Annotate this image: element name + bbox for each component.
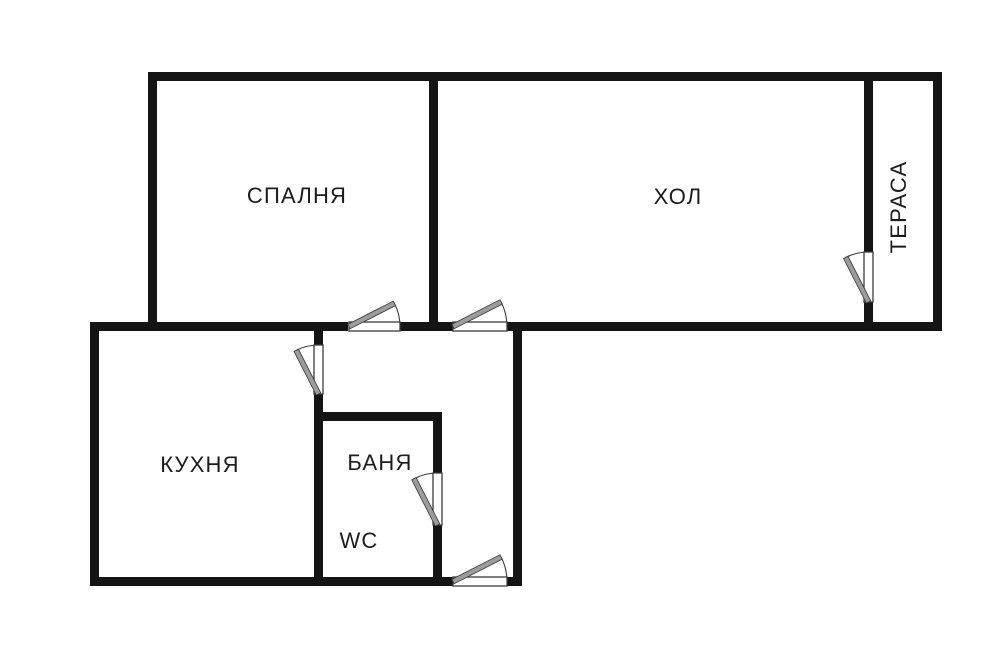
- kitchen-door: [294, 345, 323, 395]
- bottom-wall-left: [90, 577, 453, 586]
- terrace-divider-lower: [864, 302, 873, 322]
- kitchen-bath-wall-upper: [314, 331, 323, 345]
- bathroom-right-wall-upper: [433, 412, 442, 473]
- bedroom-door: [348, 301, 400, 331]
- hall-label: ХОЛ: [654, 184, 703, 209]
- bedroom-hall-divider: [429, 81, 438, 322]
- bathroom-top-wall: [314, 412, 442, 421]
- bedroom-label: СПАЛНЯ: [247, 183, 347, 208]
- kitchen-bath-wall-lower: [314, 394, 323, 586]
- bathroom-door: [412, 473, 442, 526]
- top-outer-wall: [150, 72, 942, 81]
- corridor-wall-left: [90, 322, 348, 331]
- entry-door: [452, 555, 507, 586]
- terrace-divider-upper: [864, 81, 873, 252]
- wc-label: WC: [339, 528, 378, 553]
- bathroom-label: БАНЯ: [347, 450, 412, 475]
- walls: [90, 72, 942, 586]
- terrace-door: [844, 252, 873, 303]
- corridor-wall-mid: [400, 322, 453, 331]
- corridor-wall-right: [507, 322, 942, 331]
- terrace-label: ТЕРАСА: [886, 161, 911, 254]
- entry-right-wall: [513, 331, 522, 586]
- bedroom-left-wall: [148, 72, 157, 331]
- kitchen-left-wall: [90, 322, 99, 586]
- kitchen-label: КУХНЯ: [160, 452, 240, 477]
- hall-door: [452, 300, 507, 331]
- floor-plan: СПАЛНЯ ХОЛ ТЕРАСА КУХНЯ БАНЯ WC: [0, 0, 1000, 666]
- right-outer-wall: [933, 72, 942, 331]
- floor-plan-canvas: СПАЛНЯ ХОЛ ТЕРАСА КУХНЯ БАНЯ WC: [0, 0, 1000, 666]
- bathroom-right-wall-lower: [433, 525, 442, 586]
